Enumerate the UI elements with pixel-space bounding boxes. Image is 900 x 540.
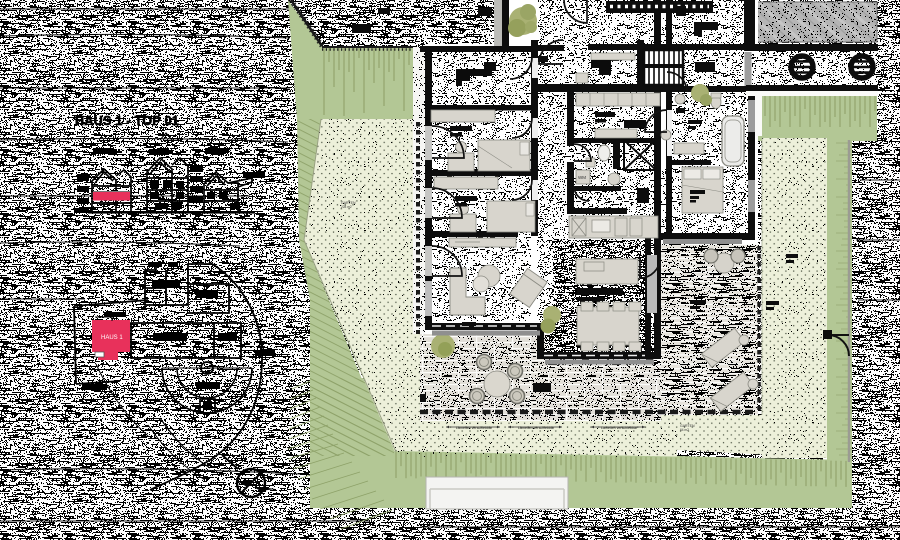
svg-text:Lamellen verschiebbar: Lamellen verschiebbar <box>456 426 493 430</box>
svg-text:HAUS 1: HAUS 1 <box>101 335 123 341</box>
svg-text:Lamellen verschiebbar: Lamellen verschiebbar <box>601 426 638 430</box>
svg-text:64 m2: 64 m2 <box>680 428 689 432</box>
svg-text:WM: WM <box>578 175 586 180</box>
svg-text:HAUS 1 - TOP 01: HAUS 1 - TOP 01 <box>75 114 179 128</box>
svg-text:228 m2: 228 m2 <box>341 205 352 209</box>
svg-text:Lamellen verschiebbar: Lamellen verschiebbar <box>518 426 555 430</box>
